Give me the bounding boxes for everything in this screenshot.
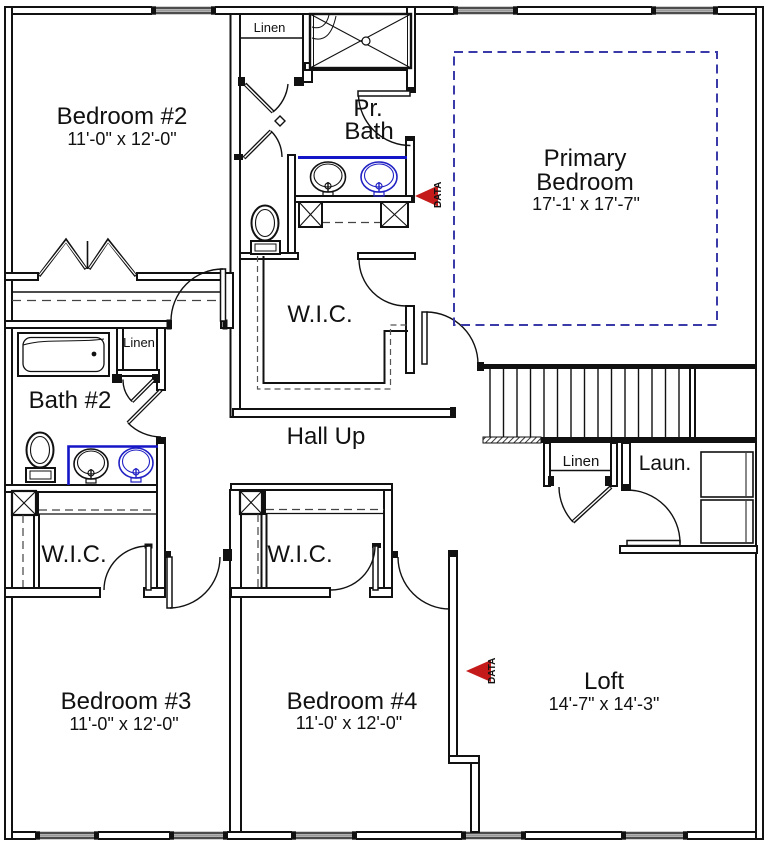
svg-text:Bath: Bath (344, 118, 393, 145)
svg-text:11'-0" x 12'-0": 11'-0" x 12'-0" (69, 714, 178, 734)
svg-text:Bedroom #3: Bedroom #3 (61, 688, 192, 715)
svg-text:DATA: DATA (487, 658, 498, 684)
svg-text:W.I.C.: W.I.C. (267, 541, 332, 568)
svg-text:11'-0" x 12'-0": 11'-0" x 12'-0" (67, 129, 176, 149)
svg-text:Bath #2: Bath #2 (29, 387, 112, 414)
svg-text:W.I.C.: W.I.C. (41, 541, 106, 568)
svg-text:Linen: Linen (123, 335, 155, 350)
svg-text:DATA: DATA (433, 182, 444, 208)
svg-text:Linen: Linen (254, 20, 286, 35)
svg-text:11'-0' x 12'-0": 11'-0' x 12'-0" (296, 713, 402, 733)
svg-text:17'-1' x 17'-7": 17'-1' x 17'-7" (532, 194, 640, 214)
svg-text:14'-7" x 14'-3": 14'-7" x 14'-3" (549, 694, 660, 714)
svg-text:Linen: Linen (563, 453, 600, 470)
svg-text:Bedroom: Bedroom (536, 169, 633, 196)
svg-text:Bedroom #2: Bedroom #2 (57, 103, 188, 130)
svg-text:W.I.C.: W.I.C. (287, 301, 352, 328)
svg-text:Hall Up: Hall Up (287, 423, 366, 450)
svg-text:Laun.: Laun. (639, 452, 692, 475)
svg-text:Primary: Primary (544, 145, 627, 172)
svg-text:Bedroom #4: Bedroom #4 (287, 688, 418, 715)
svg-text:Loft: Loft (584, 668, 624, 695)
